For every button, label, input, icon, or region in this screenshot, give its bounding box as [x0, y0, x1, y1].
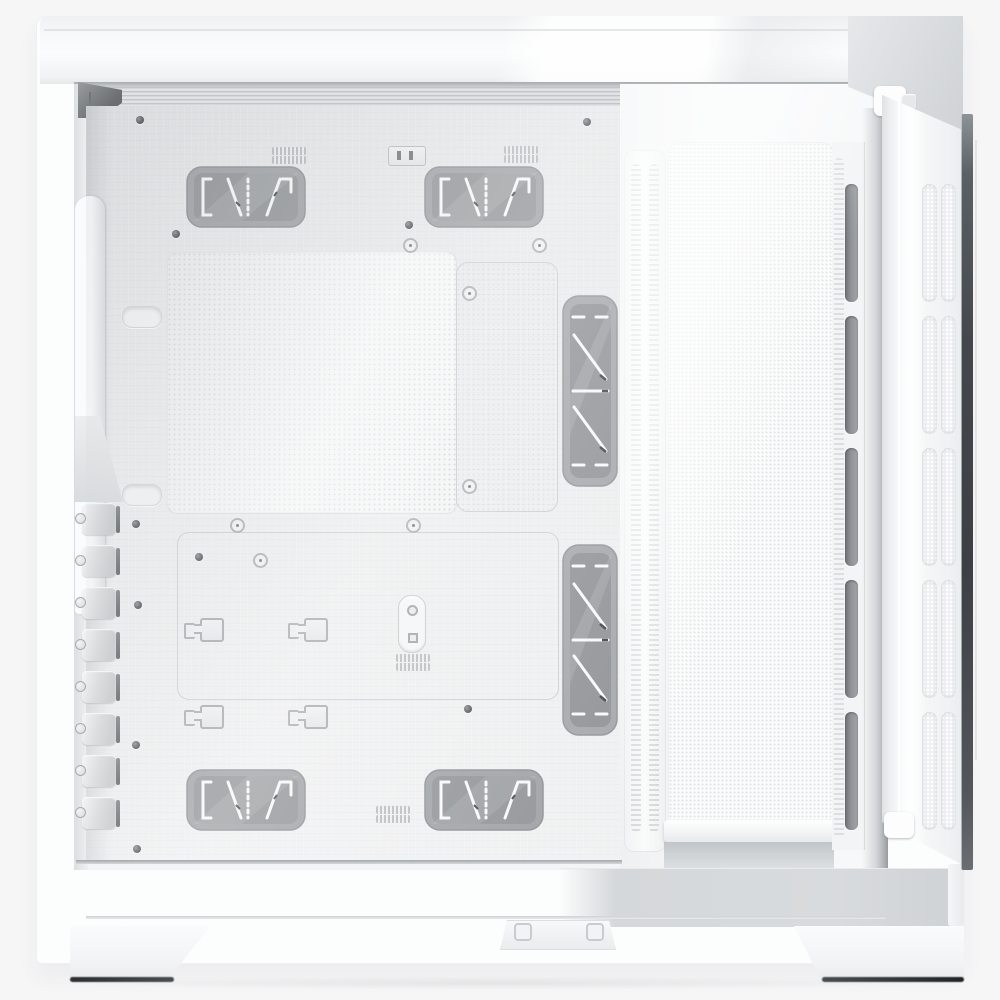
- thumbscrew: [75, 681, 86, 692]
- slot-opening: [116, 674, 120, 701]
- clip-right: [304, 705, 328, 729]
- thumbscrew: [75, 639, 86, 650]
- door-crease-highlight: [898, 90, 900, 872]
- screw: [132, 741, 140, 749]
- slot-opening: [116, 506, 120, 533]
- grommet-graphic: [562, 544, 618, 736]
- door-vent: [941, 580, 956, 698]
- thumbscrew: [75, 807, 86, 818]
- top-panel-edge-line: [44, 29, 956, 31]
- slot-louver: [82, 503, 116, 535]
- standoff-screw: [230, 518, 245, 533]
- grommet-graphic: [424, 769, 544, 831]
- clip-right: [304, 618, 328, 642]
- door-vent: [941, 448, 956, 566]
- slot-opening: [116, 716, 120, 743]
- grommet-graphic: [424, 166, 544, 228]
- cable-grommet: [424, 769, 544, 831]
- door-vent: [941, 712, 956, 830]
- cable-tie-anchor: [286, 616, 332, 642]
- pci-slot-cover: [75, 752, 123, 792]
- divider-vent-column: [631, 164, 641, 832]
- cable-grommet: [186, 769, 306, 831]
- ground-shadow: [70, 976, 930, 990]
- standoff-screw: [406, 518, 421, 533]
- slot-opening: [116, 758, 120, 785]
- door-vent: [941, 184, 956, 302]
- vent-hatch: [396, 663, 430, 671]
- glass-panel-edge: [961, 114, 973, 870]
- vent-hatch: [504, 155, 538, 163]
- cable-grommet: [186, 166, 306, 228]
- vent-slot: [845, 712, 858, 830]
- top-radiator-rail: [86, 87, 620, 108]
- door-hinge-bottom: [884, 812, 914, 838]
- divider-vent-column: [649, 164, 659, 832]
- door-vent: [922, 316, 937, 434]
- screw: [136, 116, 144, 124]
- pci-slot-cover: [75, 542, 123, 582]
- slot-louver: [82, 587, 116, 619]
- tray-vent-mesh: [167, 252, 457, 514]
- cable-grommet-vertical: [562, 295, 618, 487]
- cable-grommet-vertical: [562, 544, 618, 736]
- door-vent: [922, 184, 937, 302]
- vent-slot: [845, 316, 858, 434]
- standoff-screw: [253, 553, 268, 568]
- screw: [132, 520, 140, 528]
- pci-slot-cover: [75, 710, 123, 750]
- pci-slot-cover: [75, 584, 123, 624]
- clip-right: [200, 618, 224, 642]
- vent-hatch: [396, 654, 430, 662]
- grommet-graphic: [186, 769, 306, 831]
- foot-rubber-edge: [70, 977, 174, 982]
- door-vent: [922, 580, 937, 698]
- slot-louver: [82, 671, 116, 703]
- vent-hatch: [504, 146, 538, 154]
- standoff-screw: [532, 238, 547, 253]
- slot-louver: [82, 545, 116, 577]
- tray-pill-cutout: [122, 306, 162, 328]
- screw: [405, 221, 413, 229]
- case-foot-right: [794, 926, 964, 980]
- slot-opening: [116, 632, 120, 659]
- slot-louver: [82, 629, 116, 661]
- standoff-screw: [462, 286, 477, 301]
- thumbscrew: [75, 723, 86, 734]
- tempered-glass-door: [882, 90, 964, 872]
- thumbscrew: [75, 765, 86, 776]
- tray-pill-cutout: [122, 484, 162, 506]
- top-panel: [40, 16, 960, 84]
- clip-right: [200, 705, 224, 729]
- screw: [134, 601, 142, 609]
- screw: [133, 845, 141, 853]
- vent-hatch: [376, 815, 410, 823]
- vent-slot: [845, 448, 858, 566]
- standoff-screw: [403, 238, 418, 253]
- sill-end-cap: [948, 864, 964, 926]
- pci-slot-cover: [75, 668, 123, 708]
- cable-tie-anchor: [182, 616, 228, 642]
- tray-bottom-seam: [76, 860, 622, 864]
- pci-slot-cover: [75, 794, 123, 834]
- latch-tab: [514, 923, 532, 941]
- slot-opening: [116, 800, 120, 827]
- slot-opening: [116, 548, 120, 575]
- door-vent: [922, 448, 937, 566]
- standoff-mount: [398, 595, 426, 653]
- slot-louver: [82, 755, 116, 787]
- rear-chamber-mesh-panel: [668, 142, 834, 826]
- foot-rubber-edge: [822, 977, 964, 982]
- pci-slot-cover: [75, 626, 123, 666]
- door-vent: [922, 712, 937, 830]
- vent-slot: [845, 580, 858, 698]
- grommet-graphic: [562, 295, 618, 487]
- grommet-graphic: [186, 166, 306, 228]
- thumbscrew: [75, 597, 86, 608]
- standoff-plate-outline: [177, 532, 559, 700]
- vent-rail-perforation: [834, 158, 844, 838]
- case-foot-left: [70, 926, 210, 980]
- screw: [583, 118, 591, 126]
- vent-hatch: [376, 806, 410, 814]
- cable-grommet: [424, 166, 544, 228]
- screw: [195, 553, 203, 561]
- cable-tie-anchor: [182, 703, 228, 729]
- glass-edge-reflection: [975, 140, 977, 760]
- latch-tab: [586, 923, 604, 941]
- mesh-panel-ledge: [664, 820, 834, 842]
- cable-tie-anchor: [286, 703, 332, 729]
- vent-slot: [845, 184, 858, 302]
- thumbscrew: [75, 513, 86, 524]
- under-ledge-shadow: [664, 842, 834, 868]
- screw: [172, 230, 180, 238]
- standoff-screw: [462, 479, 477, 494]
- pc-case-product-photo: [0, 0, 1000, 1000]
- thumbscrew: [75, 555, 86, 566]
- vent-hatch: [272, 156, 306, 164]
- slot-louver: [82, 797, 116, 829]
- door-vent: [941, 316, 956, 434]
- pci-slot-cover: [75, 500, 123, 540]
- top-clip: [388, 146, 426, 166]
- slot-louver: [82, 713, 116, 745]
- bottom-panel-groove: [86, 916, 886, 919]
- vent-hatch: [272, 147, 306, 155]
- screw: [464, 705, 472, 713]
- slot-opening: [116, 590, 120, 617]
